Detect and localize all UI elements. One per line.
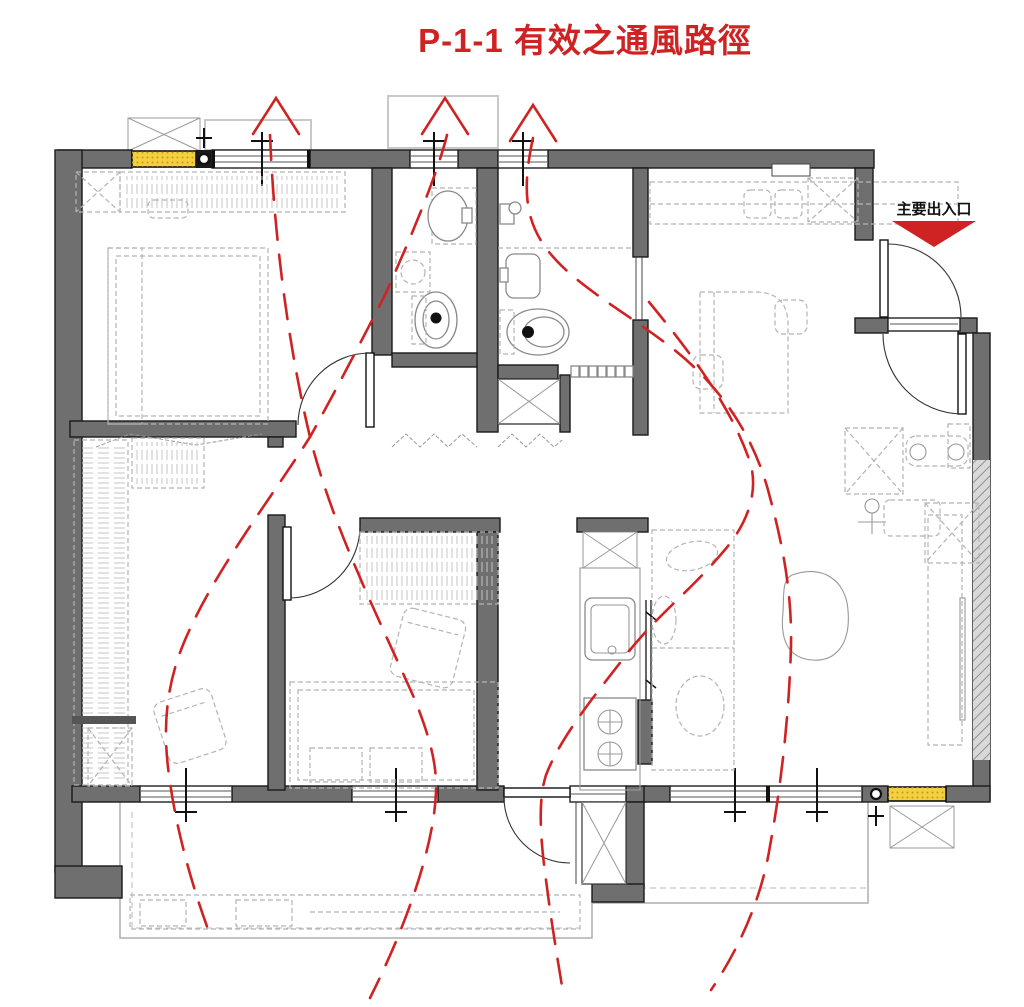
exercise-equipment [845, 428, 979, 563]
exterior-ledges [128, 96, 954, 848]
bedroom2-door [283, 527, 360, 600]
airflow-path [527, 138, 791, 990]
stove [584, 698, 636, 770]
bathroom-1 [396, 188, 476, 348]
ac-unit-box [128, 118, 200, 151]
bathroom2-pocket-door [636, 257, 642, 320]
bathroom-2 [498, 202, 633, 355]
main-entrance-label: 主要出入口 [896, 200, 971, 218]
window [570, 786, 626, 802]
vent-grille [571, 366, 633, 377]
ac-unit-box [890, 806, 954, 848]
balcony-bench [130, 895, 580, 929]
window [670, 786, 862, 802]
balcony [120, 802, 868, 938]
tv-console [928, 515, 965, 745]
lounge-rug [782, 572, 848, 661]
shaft-box [498, 379, 560, 424]
chair [775, 300, 807, 334]
bed [290, 682, 498, 788]
bed [108, 248, 268, 424]
cabinet-box [808, 178, 858, 222]
shelf [72, 716, 136, 724]
balcony-door [504, 788, 570, 863]
toilet [500, 309, 569, 355]
airflow-arrow-up-icon [510, 105, 556, 141]
foyer-door [883, 334, 966, 414]
hatched-wall [973, 460, 990, 760]
toilet [412, 292, 457, 348]
kitchen [580, 532, 640, 790]
closet-room [72, 438, 228, 786]
chair [152, 686, 229, 765]
bedroom-2 [290, 532, 498, 788]
bedroom1-door [298, 353, 374, 427]
chair [693, 355, 723, 389]
shaft-box [583, 532, 637, 568]
entrance-door [880, 240, 961, 317]
shutter-marker [199, 154, 209, 164]
airflow-arrow-up-icon [253, 98, 299, 134]
kitchen-sink [585, 598, 635, 660]
bedroom-1 [76, 172, 345, 424]
dining-table [652, 530, 734, 770]
shaft-box [576, 802, 626, 884]
shutter-marker [871, 789, 881, 799]
chair [388, 606, 467, 689]
floor-plan: 主要出入口 [0, 0, 1024, 1007]
windows [140, 128, 960, 826]
desk [693, 292, 807, 413]
kitchen-partition [646, 600, 656, 700]
living-dining-area [650, 178, 979, 770]
entrance-arrow-down-icon [892, 221, 976, 247]
airflow-arrow-up-icon [422, 98, 468, 134]
entry-threshold [888, 318, 960, 331]
main-entrance-marker: 主要出入口 [892, 200, 976, 247]
